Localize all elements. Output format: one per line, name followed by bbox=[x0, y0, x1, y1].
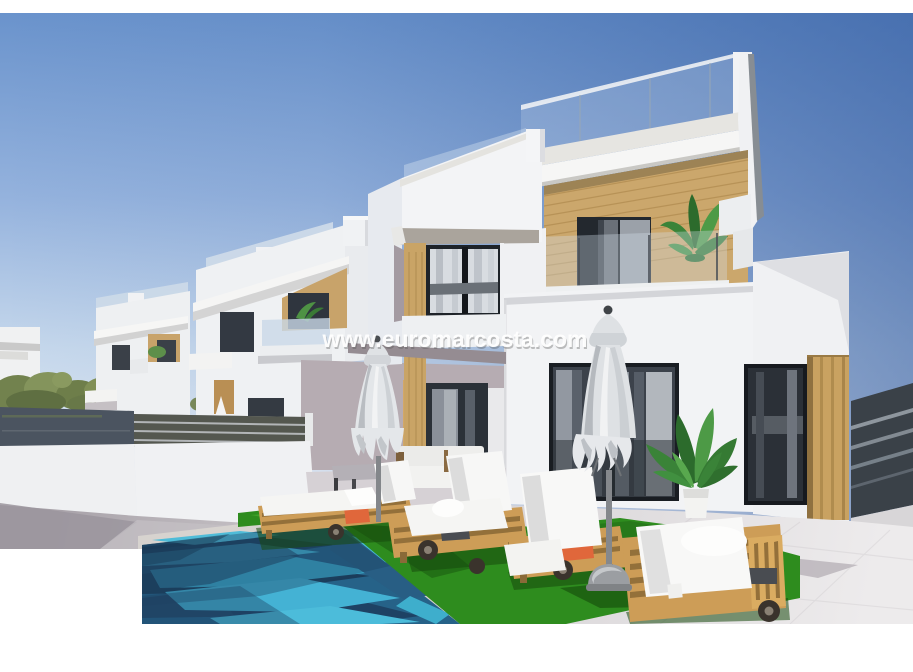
svg-text:www.euromarcosta.com: www.euromarcosta.com bbox=[321, 326, 587, 352]
